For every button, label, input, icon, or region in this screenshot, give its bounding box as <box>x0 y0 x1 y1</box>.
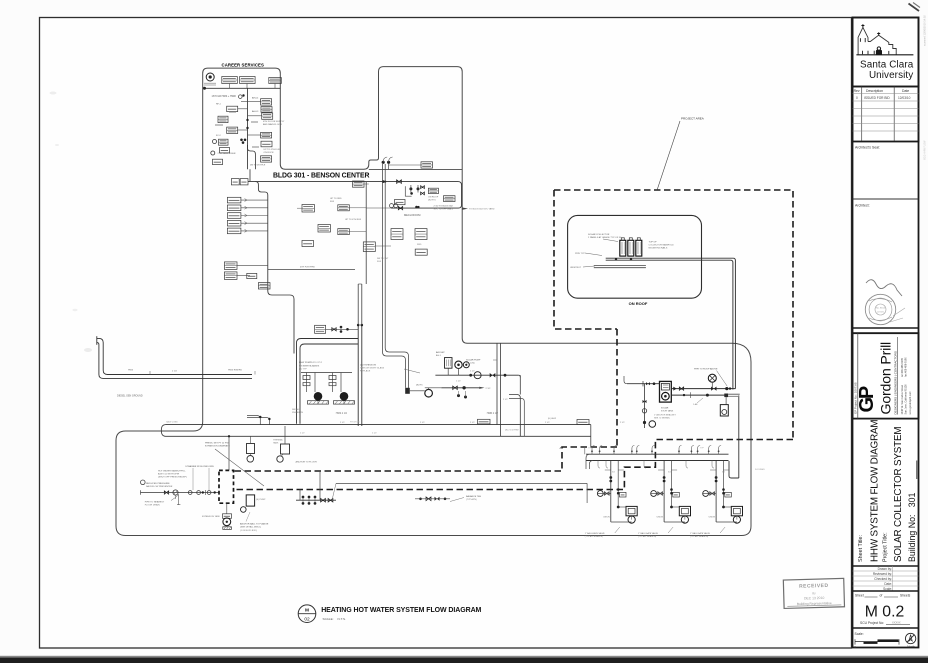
svg-text:FLR: FLR <box>377 261 382 263</box>
svg-text:2 1/2 HHW RISER: 2 1/2 HHW RISER <box>218 153 236 155</box>
svg-text:Sheet: Sheet <box>855 593 864 597</box>
svg-text:4TH FLOOR SUPPLY: 4TH FLOOR SUPPLY <box>263 121 285 123</box>
svg-text:HWS 2 1/2: HWS 2 1/2 <box>336 413 348 415</box>
svg-text:HHW PUMPS P-1 / P-2: HHW PUMPS P-1 / P-2 <box>299 362 323 364</box>
svg-text:Gordon Prill: Gordon Prill <box>879 342 895 415</box>
svg-text:PIPE TO ROOF ABOVE: PIPE TO ROOF ABOVE <box>694 367 718 370</box>
svg-text:SVC YD OFF WALL: SVC YD OFF WALL <box>434 207 454 210</box>
svg-text:PIPE TO NEAREST: PIPE TO NEAREST <box>145 501 165 504</box>
svg-text:EXPANSION TANK: EXPANSION TANK <box>202 515 221 518</box>
svg-text:SOLAR COLLECTOR SYSTEM: SOLAR COLLECTOR SYSTEM <box>893 427 904 562</box>
svg-text:THERMAL: THERMAL <box>273 439 284 442</box>
svg-text:Description: Description <box>866 89 883 93</box>
svg-text:(E) EXPANSION: (E) EXPANSION <box>360 364 377 367</box>
svg-text:(E) HX: (E) HX <box>416 384 423 386</box>
svg-text:SNUBBERS: SNUBBERS <box>292 412 304 414</box>
svg-text:(1.26 BLVD BVD): (1.26 BLVD BVD) <box>240 530 257 532</box>
svg-text:FLR: FLR <box>330 201 335 203</box>
svg-text:HWS RISERS: HWS RISERS <box>228 370 242 372</box>
svg-text:SOLAR PUMP: SOLAR PUMP <box>466 359 481 362</box>
svg-text:UNISTRUT: UNISTRUT <box>570 267 582 269</box>
svg-text:STRAINER W/ BLOWDOWN: STRAINER W/ BLOWDOWN <box>185 465 214 468</box>
svg-text:Scale:: Scale: <box>855 632 864 636</box>
svg-text:TYP: TYP <box>588 448 593 450</box>
svg-text:1 AB: 1 AB <box>693 403 698 406</box>
svg-text:UNION: UNION <box>709 517 716 519</box>
svg-text:North: North <box>907 645 915 649</box>
svg-text:Sheet Title:: Sheet Title: <box>858 535 864 562</box>
svg-text:ANCHOR BALL TO FLANGE: ANCHOR BALL TO FLANGE <box>240 522 269 525</box>
svg-text:DEC 13 2010: DEC 13 2010 <box>804 596 825 601</box>
svg-text:(TYP APN): (TYP APN) <box>466 498 477 501</box>
svg-text:BACKFLOW PREVENTER: BACKFLOW PREVENTER <box>146 485 173 488</box>
svg-text:of: of <box>880 593 883 597</box>
svg-text:FLOOR DRAIN: FLOOR DRAIN <box>145 504 160 507</box>
svg-text:SP-1 (N): SP-1 (N) <box>466 363 475 365</box>
svg-text:University: University <box>869 70 913 81</box>
svg-text:AS-1: AS-1 <box>436 354 442 357</box>
svg-text:HWR 2 1/2: HWR 2 1/2 <box>487 413 499 415</box>
svg-text:SCU Project No:: SCU Project No: <box>860 621 884 625</box>
svg-text:TO BLDG 302 SVC YARD: TO BLDG 302 SVC YARD <box>469 207 495 210</box>
svg-text:(TYP ALL BRANCH): (TYP ALL BRANCH) <box>638 535 656 538</box>
svg-text:Checked by:: Checked by: <box>874 577 892 581</box>
svg-text:UP TO 3RD: UP TO 3RD <box>330 198 342 200</box>
svg-text:(E) PUMP: (E) PUMP <box>256 499 266 501</box>
svg-text:UP TO 4TH FLR: UP TO 4TH FLR <box>264 149 280 151</box>
svg-text:AIR SEP: AIR SEP <box>436 351 445 354</box>
svg-text:M 0.2: M 0.2 <box>865 604 905 621</box>
svg-text:1" BALL/GATE VALVE: 1" BALL/GATE VALVE <box>585 532 605 535</box>
svg-text:By: By <box>812 591 816 595</box>
svg-text:SOLAR COLLECTOR: SOLAR COLLECTOR <box>588 233 610 236</box>
svg-text:GP: GP <box>856 386 878 412</box>
svg-text:MECH ROOM: MECH ROOM <box>404 213 420 217</box>
svg-text:PIPE TYP: PIPE TYP <box>575 253 585 255</box>
svg-text:EXPANSION DEAERATE: EXPANSION DEAERATE <box>205 445 230 448</box>
svg-text:Date:: Date: <box>884 582 892 586</box>
svg-text:DN TO 1ST: DN TO 1ST <box>377 258 389 260</box>
svg-text:DIESEL GEN GROUND: DIESEL GEN GROUND <box>117 395 143 398</box>
svg-text:2 1/2: 2 1/2 <box>486 388 492 390</box>
svg-text:REDUCED PRESSURE: REDUCED PRESSURE <box>146 483 170 485</box>
svg-text:0: 0 <box>856 96 858 100</box>
svg-text:BALANCE TEE: BALANCE TEE <box>466 495 482 498</box>
svg-text:Santa Clara: Santa Clara <box>860 59 914 70</box>
svg-text:TANK W/ SIGHT GLASS: TANK W/ SIGHT GLASS <box>360 367 385 370</box>
svg-text:N.T.S.: N.T.S. <box>338 617 347 621</box>
svg-text:Architect's Seal:: Architect's Seal: <box>855 146 880 150</box>
svg-text:Project Title:: Project Title: <box>883 532 889 562</box>
svg-text:PRESS. SET PT 12 PSI: PRESS. SET PT 12 PSI <box>205 442 229 444</box>
svg-text:(TYP ALL BRANCH): (TYP ALL BRANCH) <box>690 535 708 538</box>
svg-text:San Jose, California 95126: San Jose, California 95126 <box>904 384 907 415</box>
svg-text:1" BALL/GATE VALVE: 1" BALL/GATE VALVE <box>638 532 658 535</box>
svg-text:www.gordonprill.com: www.gordonprill.com <box>909 391 912 414</box>
svg-text:(E) 2 1/2 HHW: (E) 2 1/2 HHW <box>505 430 519 432</box>
svg-text:2 1/2: 2 1/2 <box>172 371 178 373</box>
svg-text:No. 8164: No. 8164 <box>876 308 886 310</box>
svg-text:3RD: 3RD <box>417 244 422 246</box>
svg-text:scanned 12/06/2010 14:02: scanned 12/06/2010 14:02 <box>923 15 927 46</box>
svg-text:TANK: TANK <box>273 441 279 444</box>
svg-text:1" ANCHOR BRACKET: 1" ANCHOR BRACKET <box>654 414 676 417</box>
svg-text:Date: Date <box>902 89 909 93</box>
svg-text:ON INERTIA BASES: ON INERTIA BASES <box>299 364 320 367</box>
svg-text:UP TO 4TH FLR: UP TO 4TH FLR <box>345 219 361 221</box>
svg-text:REPLACE: REPLACE <box>360 370 371 373</box>
svg-text:02: 02 <box>304 617 310 623</box>
svg-text:ON ROOF: ON ROOF <box>629 301 648 306</box>
svg-text:ASSY 1/2 WITH WTR: ASSY 1/2 WITH WTR <box>158 472 180 475</box>
svg-text:RECEIVED: RECEIVED <box>799 583 829 590</box>
svg-text:XXXXX: XXXXX <box>892 620 901 624</box>
svg-text:TYP: TYP <box>700 448 705 450</box>
svg-text:Architect:: Architect: <box>855 204 870 208</box>
svg-text:ISSUED FOR BID: ISSUED FOR BID <box>864 96 890 100</box>
svg-text:UNION: UNION <box>657 517 664 519</box>
svg-text:TOP OF: TOP OF <box>649 242 658 244</box>
svg-text:12/31/11: 12/31/11 <box>877 312 886 314</box>
svg-text:(E) HHW: (E) HHW <box>548 418 556 420</box>
svg-text:PITCH DN: PITCH DN <box>350 421 360 423</box>
svg-text:Sheets: Sheets <box>900 593 911 597</box>
svg-text:GALV COND: GALV COND <box>166 420 178 423</box>
svg-text:SCALE:: SCALE: <box>323 617 334 621</box>
svg-text:fax 408-486-9190: fax 408-486-9190 <box>904 357 907 377</box>
svg-text:(E) RTU: (E) RTU <box>428 199 436 201</box>
svg-text:AHU-4: AHU-4 <box>252 97 259 100</box>
svg-text:HHW SYSTEM FLOW DIAGRAM: HHW SYSTEM FLOW DIAGRAM <box>869 420 880 562</box>
svg-text:UNION: UNION <box>603 517 610 519</box>
svg-text:COLLECTOR MANIFOLD: COLLECTOR MANIFOLD <box>649 244 675 247</box>
svg-text:4TH FLR HHW: 4TH FLR HHW <box>300 267 316 269</box>
svg-text:2 1/2 TO BLDG 302: 2 1/2 TO BLDG 302 <box>434 205 454 207</box>
svg-text:ON ROOF: ON ROOF <box>428 197 439 199</box>
svg-text:HWS: HWS <box>128 370 134 372</box>
svg-text:3/4 DRAIN: 3/4 DRAIN <box>755 468 765 471</box>
svg-text:(E) TYP: (E) TYP <box>299 369 307 371</box>
svg-text:SEE #1 SEISMIC: SEE #1 SEISMIC <box>654 418 671 420</box>
svg-text:HEATING HOT WATER SYSTEM FLOW: HEATING HOT WATER SYSTEM FLOW DIAGRAM <box>321 607 481 614</box>
svg-text:AND MAIN FLOOR: AND MAIN FLOOR <box>263 123 282 126</box>
svg-text:1" BALL/GATE VALVE: 1" BALL/GATE VALVE <box>690 532 710 535</box>
svg-text:STOR TANK: STOR TANK <box>661 409 674 412</box>
svg-text:Reviewed by:: Reviewed by: <box>873 572 892 576</box>
svg-text:ON ROOF: ON ROOF <box>264 152 275 154</box>
svg-text:1ST FLR HWS + HWR: 1ST FLR HWS + HWR <box>212 95 236 98</box>
svg-text:ANCHOR TO FLOOR: ANCHOR TO FLOOR <box>296 461 318 464</box>
svg-text:Drawn by:: Drawn by: <box>878 567 892 571</box>
svg-text:(SEE DETAIL 4/M5.1): (SEE DETAIL 4/M5.1) <box>240 526 261 529</box>
svg-text:CAREER SERVICES: CAREER SERVICES <box>222 63 265 68</box>
svg-text:12/03/10: 12/03/10 <box>898 96 911 100</box>
svg-text:Building No: 301: Building No: 301 <box>907 492 917 562</box>
svg-text:DN TO 1ST FLR: DN TO 1ST FLR <box>250 165 266 167</box>
svg-text:AHU-3: AHU-3 <box>252 110 259 113</box>
svg-text:PROJECT AREA: PROJECT AREA <box>681 117 704 121</box>
svg-text:(SHUT OFF PRESS RELIEF): (SHUT OFF PRESS RELIEF) <box>158 476 187 478</box>
svg-text:MOUNTING RAILS: MOUNTING RAILS <box>649 247 668 250</box>
svg-text:Rev: Rev <box>854 89 860 93</box>
svg-text:HOT WATER MAKEUP/FILL: HOT WATER MAKEUP/FILL <box>158 469 186 472</box>
svg-text:M: M <box>305 608 309 614</box>
svg-text:BLDG 301 - BENSON CENTER: BLDG 301 - BENSON CENTER <box>273 173 370 180</box>
svg-text:SEISMIC: SEISMIC <box>292 409 301 411</box>
svg-text:SOLAR: SOLAR <box>661 406 669 409</box>
svg-text:DESIGNERS | ENGINEERS | CONTRA: DESIGNERS | ENGINEERS | CONTRACTORS <box>894 351 898 414</box>
svg-text:M0.2-HHW FLOW: M0.2-HHW FLOW <box>924 140 927 160</box>
svg-text:(TYP ALL BRANCH): (TYP ALL BRANCH) <box>585 535 603 538</box>
svg-text:2 PANELS AT GRADE TYP OF 30: 2 PANELS AT GRADE TYP OF 30 <box>588 236 622 239</box>
